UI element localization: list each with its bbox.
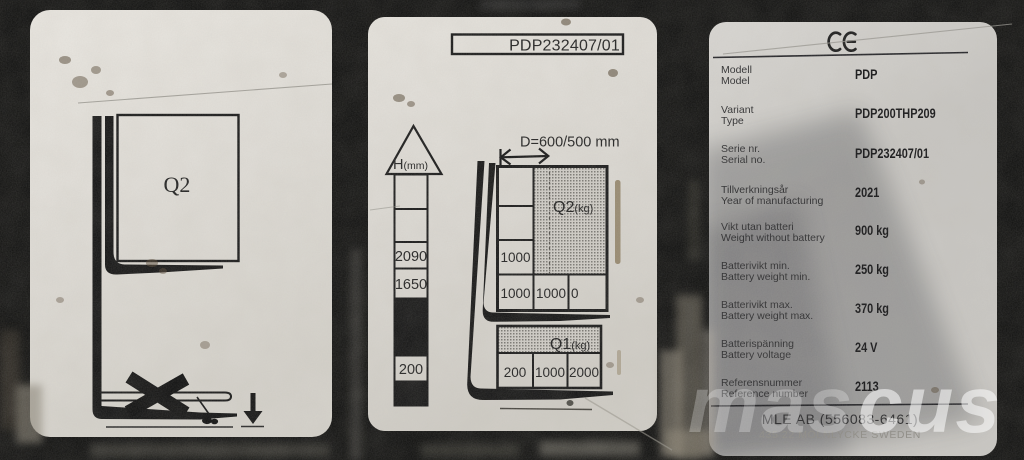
svg-text:mas: mas bbox=[688, 360, 854, 449]
svg-text:cus: cus bbox=[858, 360, 1002, 449]
